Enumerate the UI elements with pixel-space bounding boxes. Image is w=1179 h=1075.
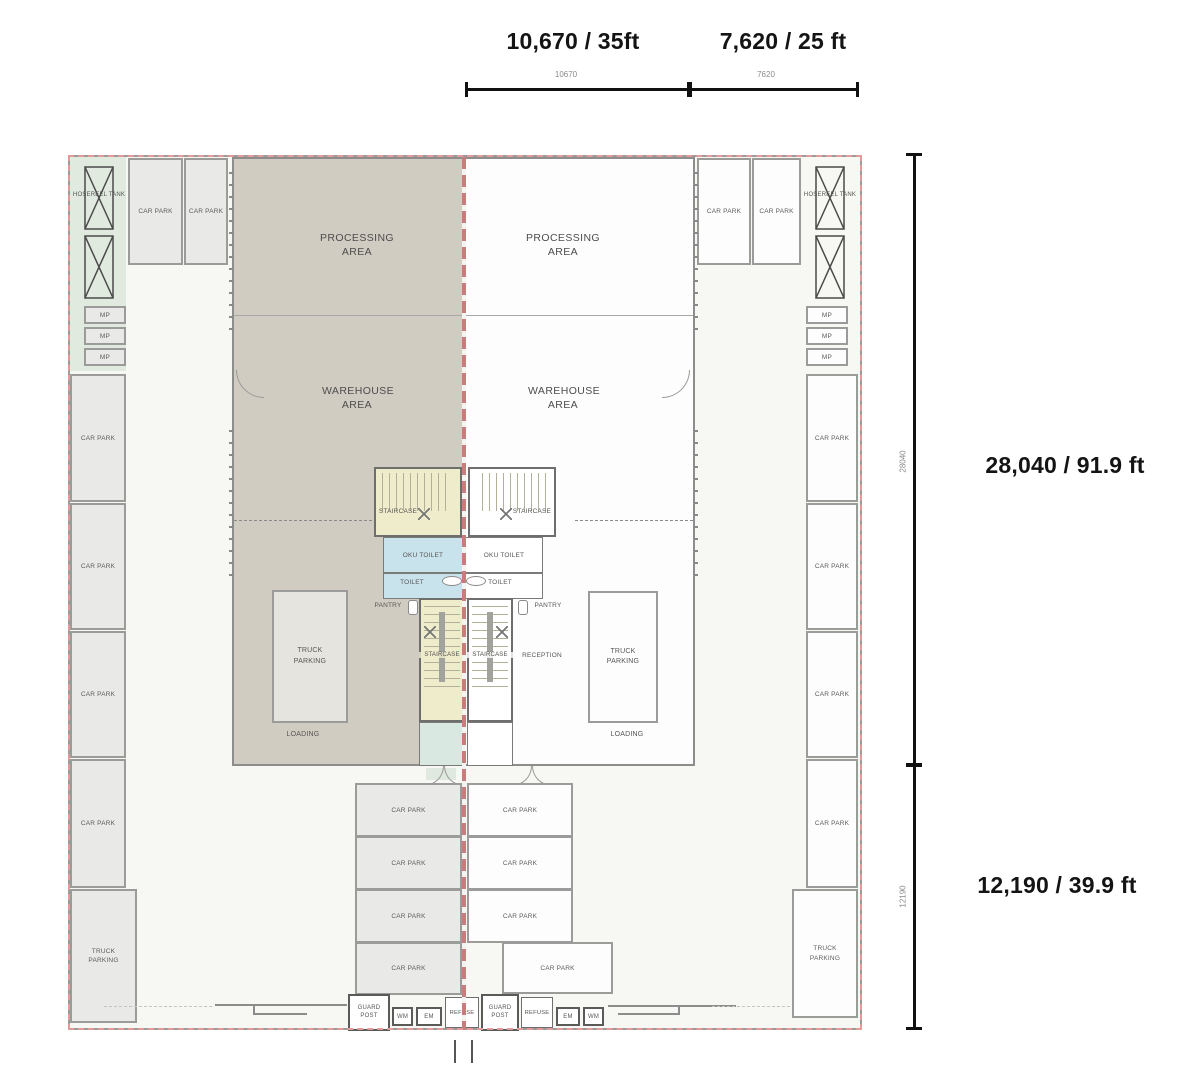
wm-box: WM (392, 1007, 413, 1026)
car-park-stall: CAR PARK (355, 836, 462, 890)
car-park-stall: CAR PARK (128, 158, 183, 265)
car-park-label: CAR PARK (81, 563, 115, 570)
car-park-label: CAR PARK (759, 208, 793, 215)
dim-top-width1-tick-label: 10670 (531, 70, 601, 79)
car-park-stall: CAR PARK (70, 631, 126, 758)
warehouse-area-label: WAREHOUSE AREA (528, 385, 598, 412)
hosereel-tank-label: HOSEREEL TANK (801, 192, 859, 199)
truck-parking-label: TRUCK PARKING (601, 647, 645, 668)
mp-label: MP (822, 312, 832, 319)
truck-parking-bay: TRUCK PARKING (272, 590, 348, 723)
car-park-label: CAR PARK (189, 208, 223, 215)
louver-wall (229, 430, 234, 580)
entry-mark (454, 1040, 456, 1063)
warehouse-dashed-line (575, 520, 693, 521)
pantry-label: PANTRY (368, 602, 408, 609)
car-park-stall: CAR PARK (467, 889, 573, 943)
oku-toilet-label: OKU TOILET (484, 552, 524, 559)
dim-top-width1-label: 10,670 / 35ft (478, 28, 668, 55)
staircase-label: STAIRCASE (419, 652, 465, 658)
dim-tick (465, 82, 468, 97)
car-park-label: CAR PARK (391, 913, 425, 920)
gate-dashed-line (104, 1006, 212, 1007)
louver-wall (229, 172, 234, 332)
warehouse-dashed-line (234, 520, 372, 521)
car-park-label: CAR PARK (815, 820, 849, 827)
stair-rail (487, 612, 493, 682)
lobby (419, 722, 465, 766)
dim-top-width2-tick-label: 7620 (731, 70, 801, 79)
wm-box: WM (583, 1007, 604, 1026)
car-park-stall: CAR PARK (752, 158, 801, 265)
car-park-stall: CAR PARK (355, 942, 462, 995)
mp-box: MP (806, 306, 848, 324)
dim-tick (856, 82, 859, 97)
processing-area-label: PROCESSING AREA (523, 232, 603, 259)
loading-label: LOADING (273, 731, 333, 738)
wm-label: WM (588, 1014, 599, 1020)
mp-label: MP (822, 333, 832, 340)
warehouse-area-label: WAREHOUSE AREA (322, 385, 392, 412)
gate-line (253, 1004, 255, 1015)
mp-box: MP (806, 327, 848, 345)
entry-mark (471, 1040, 473, 1063)
car-park-label: CAR PARK (81, 435, 115, 442)
stair-treads (482, 473, 548, 511)
truck-parking-stall: TRUCK PARKING (792, 889, 858, 1018)
car-park-stall: CAR PARK (806, 759, 858, 888)
truck-parking-stall: TRUCK PARKING (70, 889, 137, 1023)
guard-post-label: GUARD POST (483, 1005, 517, 1021)
dim-top-width2-label: 7,620 / 25 ft (697, 28, 869, 55)
sink-fixture (442, 576, 462, 586)
car-park-label: CAR PARK (503, 913, 537, 920)
car-park-stall: CAR PARK (467, 836, 573, 890)
dim-tick (906, 763, 922, 767)
mp-label: MP (822, 354, 832, 361)
em-label: EM (424, 1014, 433, 1020)
car-park-label: CAR PARK (81, 820, 115, 827)
dim-right-height1-tick-label: 28040 (899, 440, 908, 484)
loading-label: LOADING (597, 731, 657, 738)
car-park-stall: CAR PARK (697, 158, 751, 265)
louver-wall (693, 430, 698, 580)
car-park-label: CAR PARK (391, 860, 425, 867)
car-park-stall: CAR PARK (806, 503, 858, 630)
reception-label: RECEPTION (513, 652, 571, 659)
hosereel-tank-label: HOSEREEL TANK (70, 192, 128, 199)
dim-line-top (466, 88, 859, 91)
dim-line-right-lower (913, 765, 916, 1030)
stair-rail (439, 612, 445, 682)
mp-label: MP (100, 354, 110, 361)
gate-line (618, 1013, 680, 1015)
stair-direction-mark (424, 626, 436, 638)
truck-parking-bay: TRUCK PARKING (588, 591, 658, 723)
car-park-label: CAR PARK (81, 691, 115, 698)
dim-line-right-upper (913, 155, 916, 765)
mp-box: MP (84, 348, 126, 366)
em-label: EM (563, 1014, 572, 1020)
car-park-stall: CAR PARK (70, 503, 126, 630)
stair-treads (382, 473, 448, 511)
car-park-stall: CAR PARK (502, 942, 613, 994)
car-park-label: CAR PARK (540, 965, 574, 972)
oku-toilet-room: OKU TOILET (383, 537, 463, 573)
guard-post: GUARD POST (348, 994, 390, 1031)
hosereel-tank-icon (84, 166, 114, 300)
mp-box: MP (84, 327, 126, 345)
em-box: EM (416, 1007, 442, 1026)
staircase-label: STAIRCASE (374, 508, 422, 515)
wm-label: WM (397, 1014, 408, 1020)
car-park-stall: CAR PARK (70, 759, 126, 888)
car-park-label: CAR PARK (815, 435, 849, 442)
car-park-stall: CAR PARK (806, 631, 858, 758)
dim-tick (906, 1027, 922, 1030)
gate-line (678, 1005, 680, 1015)
car-park-label: CAR PARK (503, 860, 537, 867)
dim-right-height2-tick-label: 12190 (899, 875, 908, 919)
refuse-room: REFUSE (521, 997, 553, 1028)
car-park-label: CAR PARK (391, 807, 425, 814)
staircase-label: STAIRCASE (467, 652, 513, 658)
gate-line (215, 1004, 347, 1006)
hosereel-tank-icon (815, 166, 845, 300)
lobby (467, 722, 513, 766)
dim-right-height2-label: 12,190 / 39.9 ft (962, 872, 1152, 899)
car-park-stall: CAR PARK (467, 783, 573, 837)
guard-post: GUARD POST (481, 994, 519, 1031)
dim-tick (687, 82, 692, 97)
car-park-label: CAR PARK (707, 208, 741, 215)
floor-plan-canvas: 10,670 / 35ft 7,620 / 25 ft 10670 7620 2… (0, 0, 1179, 1075)
mp-label: MP (100, 333, 110, 340)
car-park-stall: CAR PARK (70, 374, 126, 502)
refuse-label: REFUSE (525, 1010, 550, 1016)
dim-right-height1-label: 28,040 / 91.9 ft (970, 452, 1160, 479)
car-park-label: CAR PARK (815, 563, 849, 570)
mp-box: MP (84, 306, 126, 324)
dim-tick (906, 153, 922, 156)
truck-parking-label: TRUCK PARKING (83, 947, 125, 965)
louver-wall (693, 172, 698, 332)
car-park-stall: CAR PARK (184, 158, 228, 265)
car-park-label: CAR PARK (138, 208, 172, 215)
car-park-stall: CAR PARK (355, 889, 462, 943)
oku-toilet-room: OKU TOILET (465, 537, 543, 573)
processing-area-label: PROCESSING AREA (317, 232, 397, 259)
car-park-label: CAR PARK (391, 965, 425, 972)
car-park-stall: CAR PARK (355, 783, 462, 837)
mp-box: MP (806, 348, 848, 366)
car-park-stall: CAR PARK (806, 374, 858, 502)
stair-direction-mark (496, 626, 508, 638)
em-box: EM (556, 1007, 580, 1026)
gate-dashed-line (712, 1006, 790, 1007)
pantry-fixture (408, 600, 418, 615)
car-park-label: CAR PARK (503, 807, 537, 814)
guard-post-label: GUARD POST (352, 1005, 386, 1021)
gate-line (253, 1013, 307, 1015)
oku-toilet-label: OKU TOILET (403, 552, 443, 559)
toilet-label: TOILET (388, 579, 436, 586)
truck-parking-label: TRUCK PARKING (804, 944, 846, 962)
party-wall (462, 157, 466, 1030)
pantry-label: PANTRY (528, 602, 568, 609)
pantry-fixture (518, 600, 528, 615)
mp-label: MP (100, 312, 110, 319)
sink-fixture (466, 576, 486, 586)
staircase-label: STAIRCASE (508, 508, 556, 515)
truck-parking-label: TRUCK PARKING (288, 646, 332, 667)
car-park-label: CAR PARK (815, 691, 849, 698)
